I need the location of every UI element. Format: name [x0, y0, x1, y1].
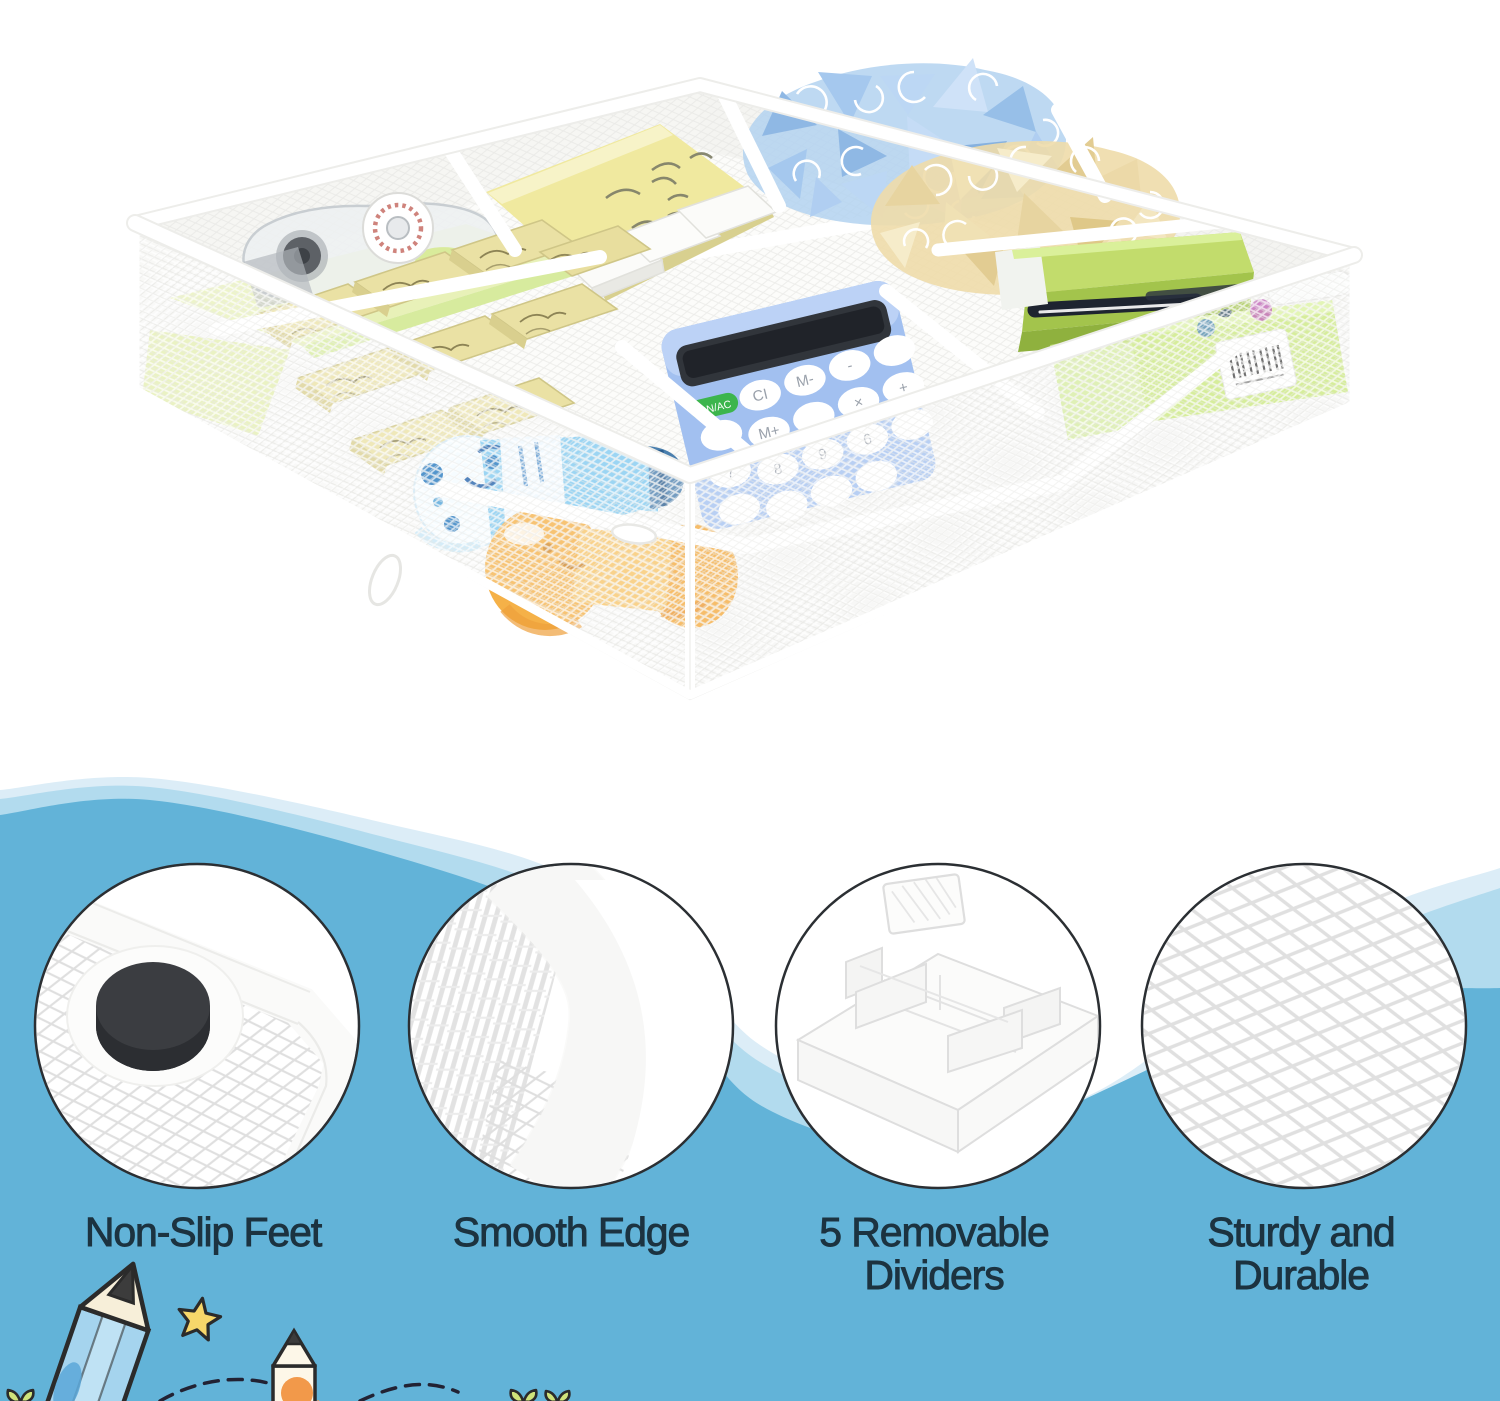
svg-text:Non-Slip Feet: Non-Slip Feet — [85, 1209, 323, 1255]
svg-text:Durable: Durable — [1233, 1252, 1369, 1298]
svg-text:5 Removable: 5 Removable — [819, 1209, 1048, 1255]
svg-text:Sturdy and: Sturdy and — [1207, 1209, 1394, 1255]
svg-text:Smooth Edge: Smooth Edge — [453, 1209, 689, 1255]
svg-text:Dividers: Dividers — [864, 1252, 1004, 1298]
